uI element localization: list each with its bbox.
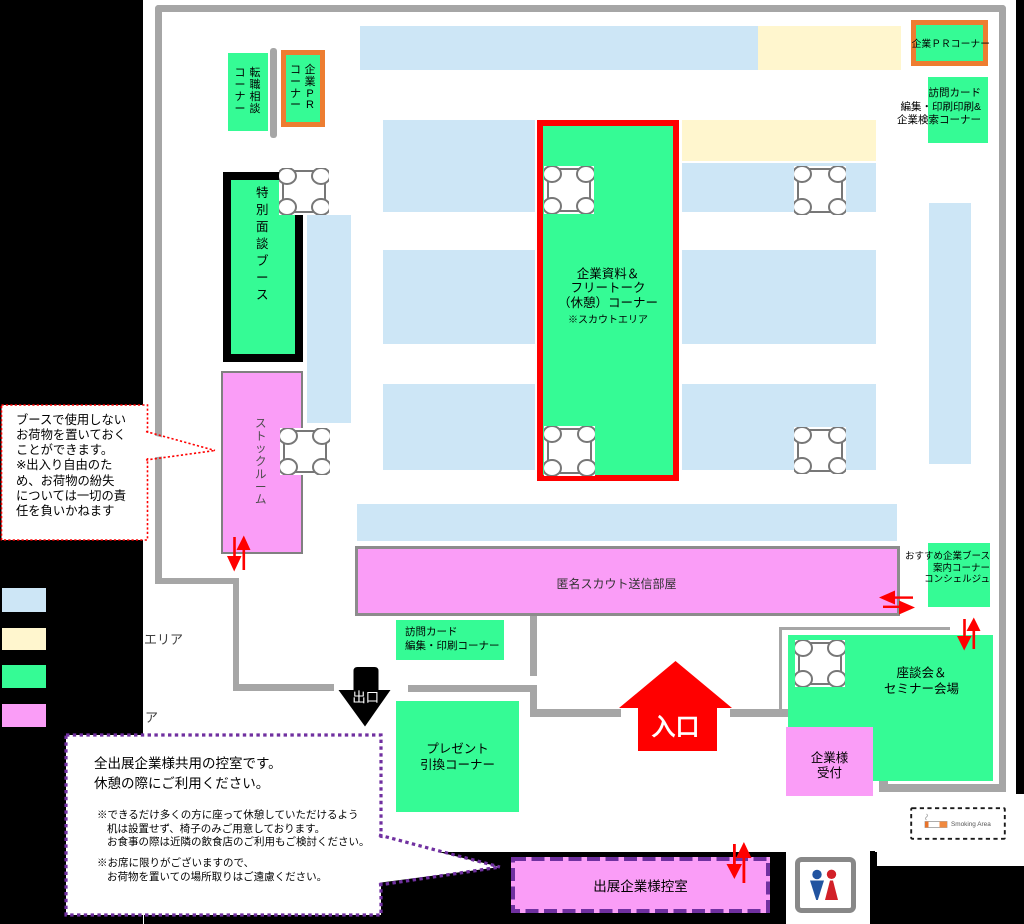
svg-text:入口: 入口 [652,714,700,741]
svg-text:出口: 出口 [352,690,379,705]
